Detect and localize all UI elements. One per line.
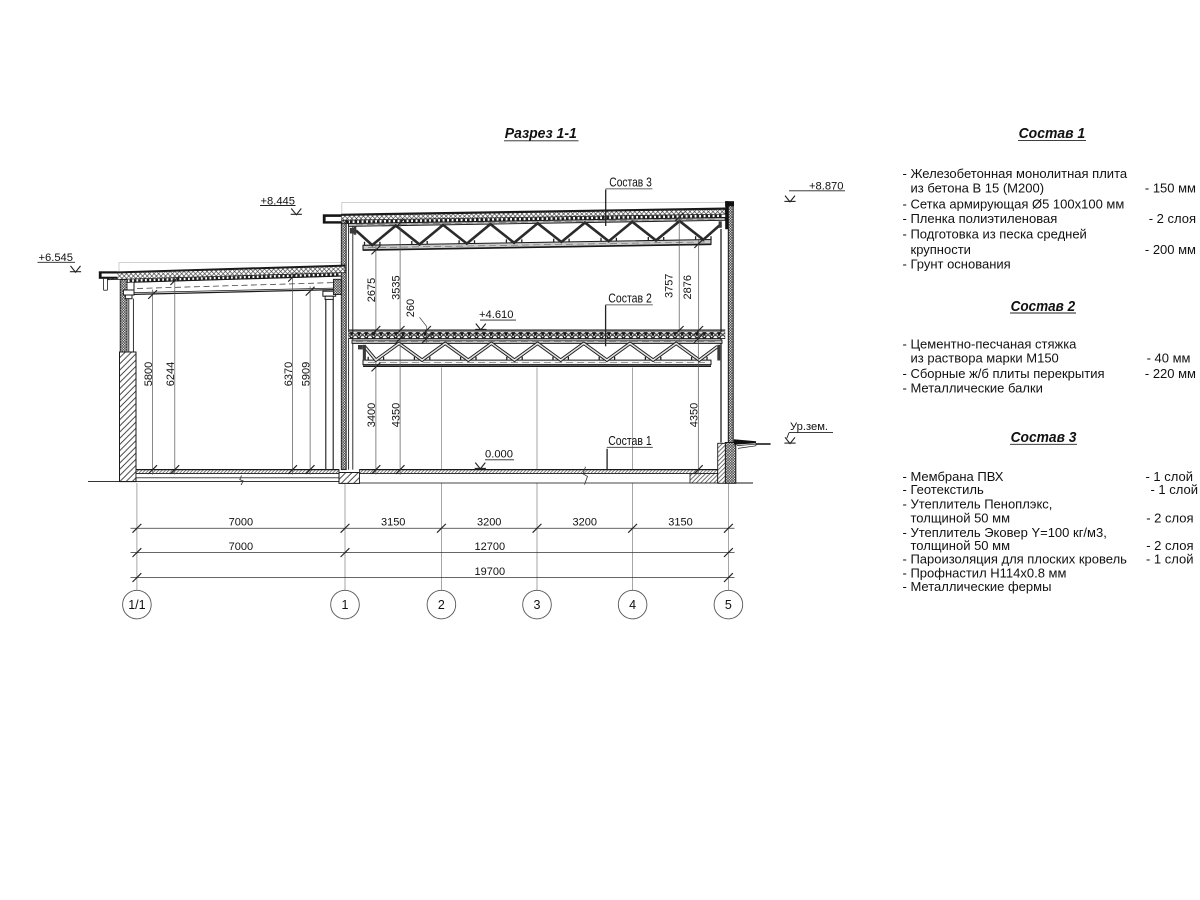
- svg-text:4: 4: [629, 598, 636, 612]
- svg-text:1/1: 1/1: [128, 598, 145, 612]
- svg-text:3757: 3757: [663, 274, 675, 298]
- svg-text:19700: 19700: [475, 566, 506, 578]
- svg-text:0.000: 0.000: [485, 449, 513, 461]
- svg-text:6370: 6370: [283, 362, 295, 386]
- svg-text:Состав 2: Состав 2: [1011, 298, 1076, 315]
- svg-text:- Грунт основания: - Грунт основания: [903, 257, 1011, 272]
- svg-text:из раствора марки М150: из раствора марки М150: [911, 350, 1059, 365]
- svg-text:Состав 3: Состав 3: [1011, 429, 1077, 446]
- svg-text:3200: 3200: [573, 517, 597, 529]
- svg-text:3150: 3150: [668, 517, 692, 529]
- svg-text:Состав 3: Состав 3: [609, 175, 652, 189]
- svg-text:- 150 мм: - 150 мм: [1145, 181, 1196, 196]
- svg-text:3535: 3535: [390, 275, 402, 299]
- svg-text:- Сетка армирующая Ø5 100х100: - Сетка армирующая Ø5 100х100 мм: [903, 197, 1125, 212]
- svg-text:крупности: крупности: [911, 242, 971, 257]
- svg-text:3200: 3200: [477, 517, 501, 529]
- svg-text:из бетона В 15 (М200): из бетона В 15 (М200): [911, 181, 1045, 196]
- svg-text:2: 2: [438, 598, 445, 612]
- svg-text:260: 260: [405, 299, 417, 317]
- svg-text:толщиной 50 мм: толщиной 50 мм: [911, 510, 1011, 525]
- svg-text:- 2 слоя: - 2 слоя: [1146, 510, 1193, 525]
- svg-text:- Пленка полиэтиленовая: - Пленка полиэтиленовая: [903, 211, 1058, 226]
- svg-text:Состав 2: Состав 2: [608, 291, 652, 305]
- svg-text:3: 3: [534, 598, 541, 612]
- svg-text:5909: 5909: [300, 362, 312, 386]
- svg-text:- Металлические балки: - Металлические балки: [903, 380, 1043, 395]
- svg-text:- 1 слой: - 1 слой: [1146, 552, 1194, 567]
- svg-text:3150: 3150: [381, 517, 405, 529]
- svg-text:Состав 1: Состав 1: [1019, 125, 1086, 142]
- svg-text:6244: 6244: [165, 362, 177, 386]
- svg-text:5800: 5800: [143, 362, 155, 386]
- svg-text:- Металлические фермы: - Металлические фермы: [903, 579, 1052, 594]
- svg-text:1: 1: [342, 598, 349, 612]
- svg-text:2675: 2675: [366, 278, 378, 302]
- svg-text:4350: 4350: [689, 403, 701, 427]
- svg-text:- Железобетонная монолитная п: - Железобетонная монолитная плита: [903, 166, 1128, 181]
- svg-text:Ур.зем.: Ур.зем.: [790, 421, 828, 433]
- svg-text:Разрез 1-1: Разрез 1-1: [505, 125, 577, 142]
- svg-text:- Геотекстиль: - Геотекстиль: [903, 482, 984, 497]
- svg-text:- 1 слой: - 1 слой: [1150, 482, 1198, 497]
- svg-text:- Сборные ж/б плиты перекрытия: - Сборные ж/б плиты перекрытия: [903, 366, 1105, 381]
- svg-text:3400: 3400: [366, 403, 378, 427]
- svg-text:- Утеплитель Пеноплэкс,: - Утеплитель Пеноплэкс,: [903, 497, 1053, 512]
- svg-text:7000: 7000: [229, 517, 253, 529]
- svg-text:12700: 12700: [475, 541, 506, 553]
- svg-text:5: 5: [725, 598, 732, 612]
- svg-text:Состав 1: Состав 1: [608, 434, 652, 448]
- svg-text:- 220 мм: - 220 мм: [1145, 366, 1196, 381]
- svg-text:- 200 мм: - 200 мм: [1145, 242, 1196, 257]
- svg-text:- 40 мм: - 40 мм: [1147, 350, 1191, 365]
- svg-text:4350: 4350: [390, 403, 402, 427]
- svg-text:2876: 2876: [682, 275, 694, 299]
- svg-text:+4.610: +4.610: [479, 309, 514, 321]
- svg-text:- 2 слоя: - 2 слоя: [1149, 211, 1196, 226]
- svg-text:7000: 7000: [229, 541, 253, 553]
- svg-text:- Подготовка из песка средней: - Подготовка из песка средней: [903, 226, 1087, 241]
